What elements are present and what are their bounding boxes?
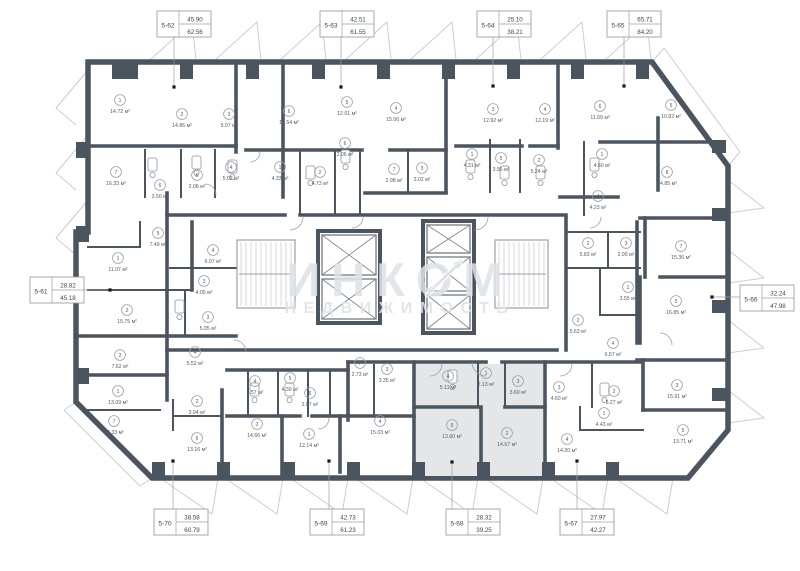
wall-pier — [180, 64, 193, 79]
room-number: 4 — [194, 350, 197, 356]
unit-id: 5-63 — [324, 23, 338, 30]
balcony-tooth-right — [728, 390, 764, 423]
room-number: 2 — [126, 308, 129, 314]
room-area: 3.56 м² — [493, 167, 510, 173]
room-number: 3 — [676, 383, 679, 389]
room-number: 6 — [309, 391, 312, 397]
room-number: 1 — [471, 152, 474, 158]
room-number: 5 — [289, 376, 292, 382]
room-number: 3 — [421, 166, 424, 172]
wall-pier — [217, 462, 230, 476]
room-area: 2.13 м² — [478, 382, 495, 388]
unit-area-top: 45.90 — [187, 17, 203, 24]
watermark: ИНКОМНЕДВИЖИМОСТЬ — [285, 253, 516, 317]
unit-area-top: 28.32 — [476, 515, 492, 522]
unit-id: 5-66 — [744, 297, 758, 304]
room-area: 13.16 м² — [187, 447, 207, 453]
wall-pier — [76, 142, 89, 158]
balcony-tooth-bottom — [225, 478, 283, 514]
room-number: 3 — [625, 241, 628, 247]
watermark-subtitle-text: НЕДВИЖИМОСТЬ — [285, 300, 516, 317]
room-area: 3.50 м² — [152, 194, 169, 200]
room-number: 5 — [346, 100, 349, 106]
unit-dot — [710, 295, 713, 298]
room-number: 5 — [682, 428, 685, 434]
room-area: 3.94 м² — [189, 410, 206, 416]
room-number: 1 — [308, 432, 311, 438]
room-number: 4 — [379, 419, 382, 425]
room-number: 4 — [612, 341, 615, 347]
unit-id: 5-67 — [564, 521, 578, 528]
unit-area-top: 27.97 — [590, 515, 606, 522]
room-number: 4 — [230, 165, 233, 171]
wall-pier — [712, 300, 726, 313]
room-number: 4 — [447, 374, 450, 380]
room-area: 7.62 м² — [112, 364, 129, 370]
wall-pier — [571, 64, 584, 79]
unit-area-bottom: 39.25 — [476, 527, 492, 534]
room-area: 14.72 м² — [110, 109, 130, 115]
room-number: 3 — [386, 367, 389, 373]
room-number: 2 — [577, 318, 580, 324]
wall-pier — [712, 140, 726, 153]
room-area: 4.23 м² — [590, 205, 607, 211]
wall-pier — [477, 462, 490, 476]
room-area: 4.39 м² — [282, 387, 299, 393]
room-number: 4 — [254, 379, 257, 385]
unit-id: 5-70 — [158, 521, 172, 528]
wall-pier — [442, 64, 455, 79]
balcony-tooth-top — [280, 22, 326, 60]
room-area: 5.05 м² — [200, 326, 217, 332]
room-area: 15.06 м² — [386, 117, 406, 123]
balcony-tooth-right — [728, 250, 764, 283]
unit-dot — [172, 85, 175, 88]
room-area: 4.33 м² — [272, 176, 289, 182]
bath-fixture — [600, 383, 609, 396]
unit-dot — [327, 459, 330, 462]
room-number: 1 — [119, 98, 122, 104]
unit-area-top: 32.24 — [770, 291, 786, 298]
room-area: 12.33 м² — [104, 430, 124, 436]
room-number: 7 — [359, 361, 362, 367]
room-number: 8 — [666, 170, 669, 176]
unit-area-bottom: 38.21 — [507, 29, 523, 36]
room-number: 7 — [393, 167, 396, 173]
room-area: 14.67 м² — [497, 442, 517, 448]
room-number: 2 — [181, 112, 184, 118]
balcony-tooth-bottom — [615, 478, 673, 514]
unit-dot — [575, 459, 578, 462]
room-number: 3 — [228, 112, 231, 118]
room-area: 5.83 м² — [580, 252, 597, 258]
unit-dot — [108, 288, 111, 291]
unit-dot — [622, 84, 625, 87]
room-area: 3.97 м² — [302, 402, 319, 408]
room-number: 2 — [319, 170, 322, 176]
room-number: 4 — [566, 437, 569, 443]
room-number: 7 — [115, 170, 118, 176]
room-area: 2.73 м² — [352, 372, 369, 378]
room-number: 1 — [279, 165, 282, 171]
wall-pier — [636, 64, 649, 79]
room-area: 5.02 м² — [223, 176, 240, 182]
room-area: 7.49 м² — [150, 242, 167, 248]
wall-pier — [112, 64, 138, 79]
room-number: 5 — [196, 173, 199, 179]
room-area: 15.75 м² — [117, 319, 137, 325]
room-area: 15.91 м² — [667, 394, 687, 400]
unit-id: 5-62 — [161, 23, 175, 30]
room-number: 1 — [603, 411, 606, 417]
room-number: 6 — [288, 109, 291, 115]
room-number: 5 — [500, 156, 503, 162]
floor-plan-svg: 114.72 м²214.86 м²35.07 м²716.33 м²63.50… — [0, 0, 800, 566]
room-area: 6.57 м² — [605, 352, 622, 358]
room-number: 1 — [601, 152, 604, 158]
unit-area-top: 42.51 — [350, 17, 366, 24]
room-area: 16.85 м² — [666, 310, 686, 316]
room-number: 5 — [670, 103, 673, 109]
unit-area-top: 25.10 — [507, 17, 523, 24]
room-area: 5.11 м² — [440, 385, 457, 391]
room-number: 6 — [159, 183, 162, 189]
room-area: 4.57 м² — [247, 390, 264, 396]
unit-id: 5-68 — [450, 521, 464, 528]
room-number: 3 — [203, 279, 206, 285]
room-number: 4 — [597, 194, 600, 200]
unit-id: 5-61 — [34, 289, 48, 296]
room-number: 2 — [506, 431, 509, 437]
bath-fixture — [192, 156, 201, 169]
room-number: 6 — [196, 436, 199, 442]
room-area: 12.14 м² — [299, 443, 319, 449]
room-number: 2 — [538, 158, 541, 164]
wall-pier — [282, 462, 295, 476]
room-area: 3.35 м² — [379, 378, 396, 384]
unit-area-bottom: 42.27 — [590, 527, 606, 534]
room-area: 24.85 м² — [657, 181, 677, 187]
room-area: 2.99 м² — [618, 252, 635, 258]
room-area: 14.20 м² — [557, 448, 577, 454]
unit-area-bottom: 61.23 — [340, 527, 356, 534]
wall-pier — [246, 64, 259, 79]
wall-pier — [76, 368, 89, 384]
unit-area-bottom: 60.79 — [184, 527, 200, 534]
unit-dot — [450, 460, 453, 463]
room-number: 5 — [675, 299, 678, 305]
unit-area-bottom: 47.98 — [770, 303, 786, 310]
unit-dot — [171, 459, 174, 462]
balcony-tooth-right — [728, 180, 764, 213]
room-area: 11.07 м² — [108, 267, 128, 273]
room-number: 6 — [599, 104, 602, 110]
room-area: 10.82 м² — [661, 114, 681, 120]
room-area: 11.69 м² — [590, 115, 610, 121]
watermark-layer: ИНКОМНЕДВИЖИМОСТЬ — [285, 253, 516, 317]
room-number: 5 — [451, 423, 454, 429]
unit-area-bottom: 62.56 — [187, 29, 203, 36]
room-number: 7 — [680, 244, 683, 250]
room-number: 2 — [119, 353, 122, 359]
room-area: 14.86 м² — [172, 123, 192, 129]
room-number: 2 — [587, 241, 590, 247]
balcony-tooth-top — [410, 22, 456, 60]
wall-pier — [312, 64, 325, 79]
room-area: 13.09 м² — [108, 400, 128, 406]
room-area: 4.60 м² — [551, 396, 568, 402]
room-number: 1 — [117, 389, 120, 395]
room-number: 7 — [113, 419, 116, 425]
wall-pier — [377, 64, 390, 79]
room-number: 3 — [558, 385, 561, 391]
room-number: 2 — [256, 422, 259, 428]
watermark-brand-text: ИНКОМ — [286, 253, 513, 306]
room-area: 2.98 м² — [386, 178, 403, 184]
room-area: 5.07 м² — [221, 123, 238, 129]
room-area: 2.08 м² — [189, 184, 206, 190]
room-number: 3 — [207, 315, 210, 321]
wall-pier — [507, 64, 520, 79]
room-area: 15.03 м² — [370, 430, 390, 436]
room-area: 4.43 м² — [596, 422, 613, 428]
wall-pier — [347, 462, 360, 476]
room-area: 5.27 м² — [606, 400, 623, 406]
room-area: 12.01 м² — [337, 111, 357, 117]
room-number: 2 — [613, 389, 616, 395]
room-area: 2.06 м² — [337, 152, 354, 158]
unit-area-bottom: 45.18 — [60, 295, 76, 302]
balcony-tooth-right — [728, 320, 764, 353]
room-number: 1 — [117, 256, 120, 262]
wall-pier — [152, 462, 165, 476]
unit-area-bottom: 61.55 — [350, 29, 366, 36]
room-number: 4 — [395, 106, 398, 112]
room-area: 12.92 м² — [483, 118, 503, 124]
wall-pier — [76, 226, 89, 242]
room-area: 14.66 м² — [247, 433, 267, 439]
room-area: 15.36 м² — [671, 255, 691, 261]
room-area: 5.52 м² — [187, 361, 204, 367]
room-area: 3.60 м² — [510, 390, 527, 396]
room-area: 4.60 м² — [594, 163, 611, 169]
room-area: 4.73 м² — [312, 181, 329, 187]
bath-fixture — [306, 166, 315, 179]
balcony-tooth-left — [56, 70, 88, 125]
unit-dot — [339, 85, 342, 88]
room-area: 13.60 м² — [442, 434, 462, 440]
unit-area-top: 38.58 — [184, 515, 200, 522]
room-number: 5 — [157, 231, 160, 237]
room-area: 14.54 м² — [279, 120, 299, 126]
room-number: 1 — [485, 371, 488, 377]
wall-pier — [606, 462, 619, 476]
room-number: 4 — [544, 107, 547, 113]
unit-area-bottom: 84.20 — [637, 29, 653, 36]
wall-pier — [712, 208, 726, 221]
room-area: 5.63 м² — [570, 329, 587, 335]
room-area: 6.07 м² — [205, 259, 222, 265]
room-number: 6 — [344, 141, 347, 147]
unit-dot — [491, 84, 494, 87]
room-area: 12.19 м² — [535, 118, 555, 124]
bath-fixture — [148, 158, 157, 171]
floor-plan: 114.72 м²214.86 м²35.07 м²716.33 м²63.50… — [0, 0, 800, 566]
room-number: 3 — [517, 379, 520, 385]
unit-area-top: 28.82 — [60, 283, 76, 290]
room-area: 4.05 м² — [196, 290, 213, 296]
room-area: 3.02 м² — [414, 177, 431, 183]
room-area: 16.33 м² — [106, 181, 126, 187]
room-number: 2 — [196, 399, 199, 405]
room-area: 13.71 м² — [673, 439, 693, 445]
balcony-tooth-top — [540, 22, 586, 60]
room-area: 5.24 м² — [531, 169, 548, 175]
unit-id: 5-69 — [314, 521, 328, 528]
balcony-tooth-top — [215, 22, 261, 60]
floorplan-page: { "watermark": { "line1": "ИНКОМ", "line… — [0, 0, 800, 566]
wall-pier — [412, 462, 425, 476]
unit-area-top: 65.71 — [637, 17, 653, 24]
unit-id: 5-64 — [481, 23, 495, 30]
room-area: 4.31 м² — [464, 163, 481, 169]
room-number: 3 — [492, 107, 495, 113]
room-area: 3.55 м² — [620, 296, 637, 302]
wall-pier — [542, 462, 555, 476]
unit-area-top: 42.73 — [340, 515, 356, 522]
unit-id: 5-65 — [611, 23, 625, 30]
room-number: 4 — [212, 248, 215, 254]
bath-fixture — [175, 300, 184, 313]
room-number: 1 — [627, 285, 630, 291]
wall-pier — [712, 388, 726, 401]
